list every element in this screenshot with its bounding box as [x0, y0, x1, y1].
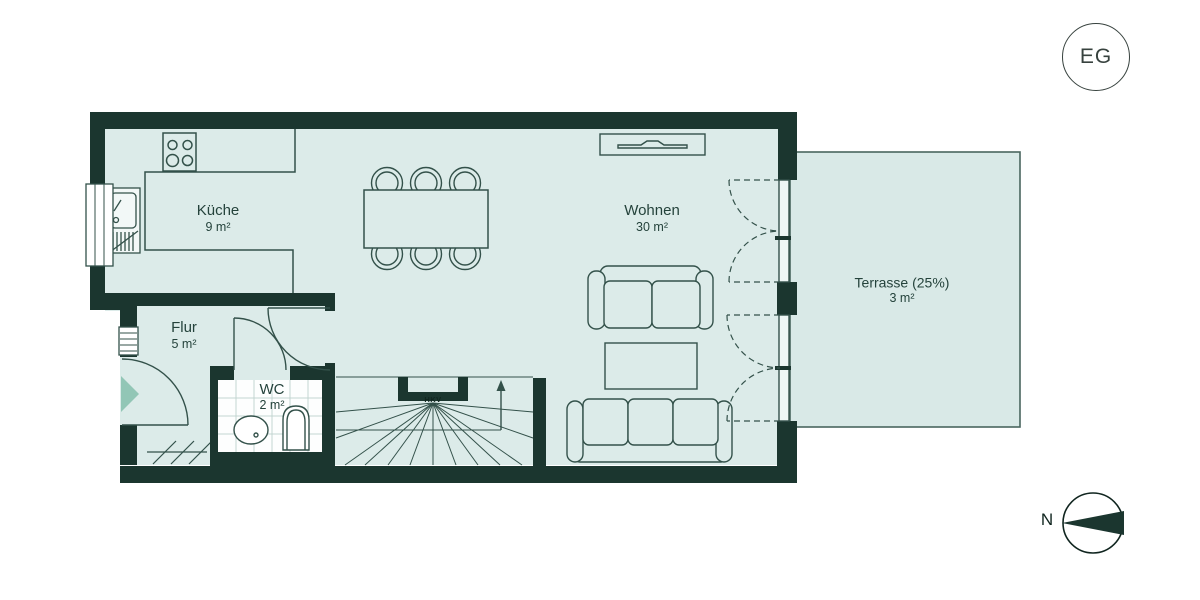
wall-right-top [778, 112, 797, 180]
room-area-flur: 5 m² [172, 338, 197, 352]
compass-icon [1062, 493, 1124, 553]
wall-top [90, 112, 797, 129]
door-meeting-tick [775, 236, 791, 240]
wall-wc-top-left [210, 366, 234, 380]
coffee-table [605, 343, 697, 389]
sofa-2seat [588, 266, 713, 329]
hkv-label: HKV [424, 396, 441, 404]
room-label-terrasse: Terrasse (25%) [855, 275, 950, 290]
room-label-wc: WC [260, 382, 285, 399]
stair-newel-right [458, 377, 468, 401]
terrace-door-glass-upper [779, 180, 789, 282]
floorplan-drawing [0, 0, 1200, 600]
floorplan-page: Küche 9 m² Wohnen 30 m² Flur 5 m² WC 2 m… [0, 0, 1200, 600]
wall-right-pier [777, 282, 797, 315]
wall-wc-bottom [218, 452, 322, 466]
room-area-kueche: 9 m² [206, 221, 231, 235]
stove-icon [163, 133, 196, 171]
entry-sidelight-window [119, 327, 138, 355]
wall-stairs-right [533, 378, 546, 466]
tv-sideboard [600, 134, 705, 155]
compass-north-label: N [1032, 510, 1062, 536]
room-label-kueche: Küche [197, 203, 240, 220]
room-area-terrasse: 3 m² [890, 292, 915, 306]
room-area-wc: 2 m² [260, 399, 285, 413]
room-label-flur: Flur [171, 320, 197, 337]
floor-badge: EG [1062, 23, 1130, 91]
wall-bottom [120, 466, 797, 483]
stair-newel-left [398, 377, 408, 401]
wall-wc-left [210, 380, 218, 466]
room-label-wohnen: Wohnen [624, 203, 680, 220]
sofa-3seat [567, 399, 732, 462]
wash-basin-icon [234, 416, 268, 444]
exterior-notch [88, 311, 120, 483]
wall-flur-top [105, 293, 335, 306]
dining-table [364, 190, 488, 248]
toilet-icon [283, 406, 309, 450]
wall-right-bottom [777, 421, 797, 483]
kitchen-window [86, 184, 113, 266]
wall-wc-right [322, 378, 335, 466]
room-area-wohnen: 30 m² [636, 221, 668, 235]
